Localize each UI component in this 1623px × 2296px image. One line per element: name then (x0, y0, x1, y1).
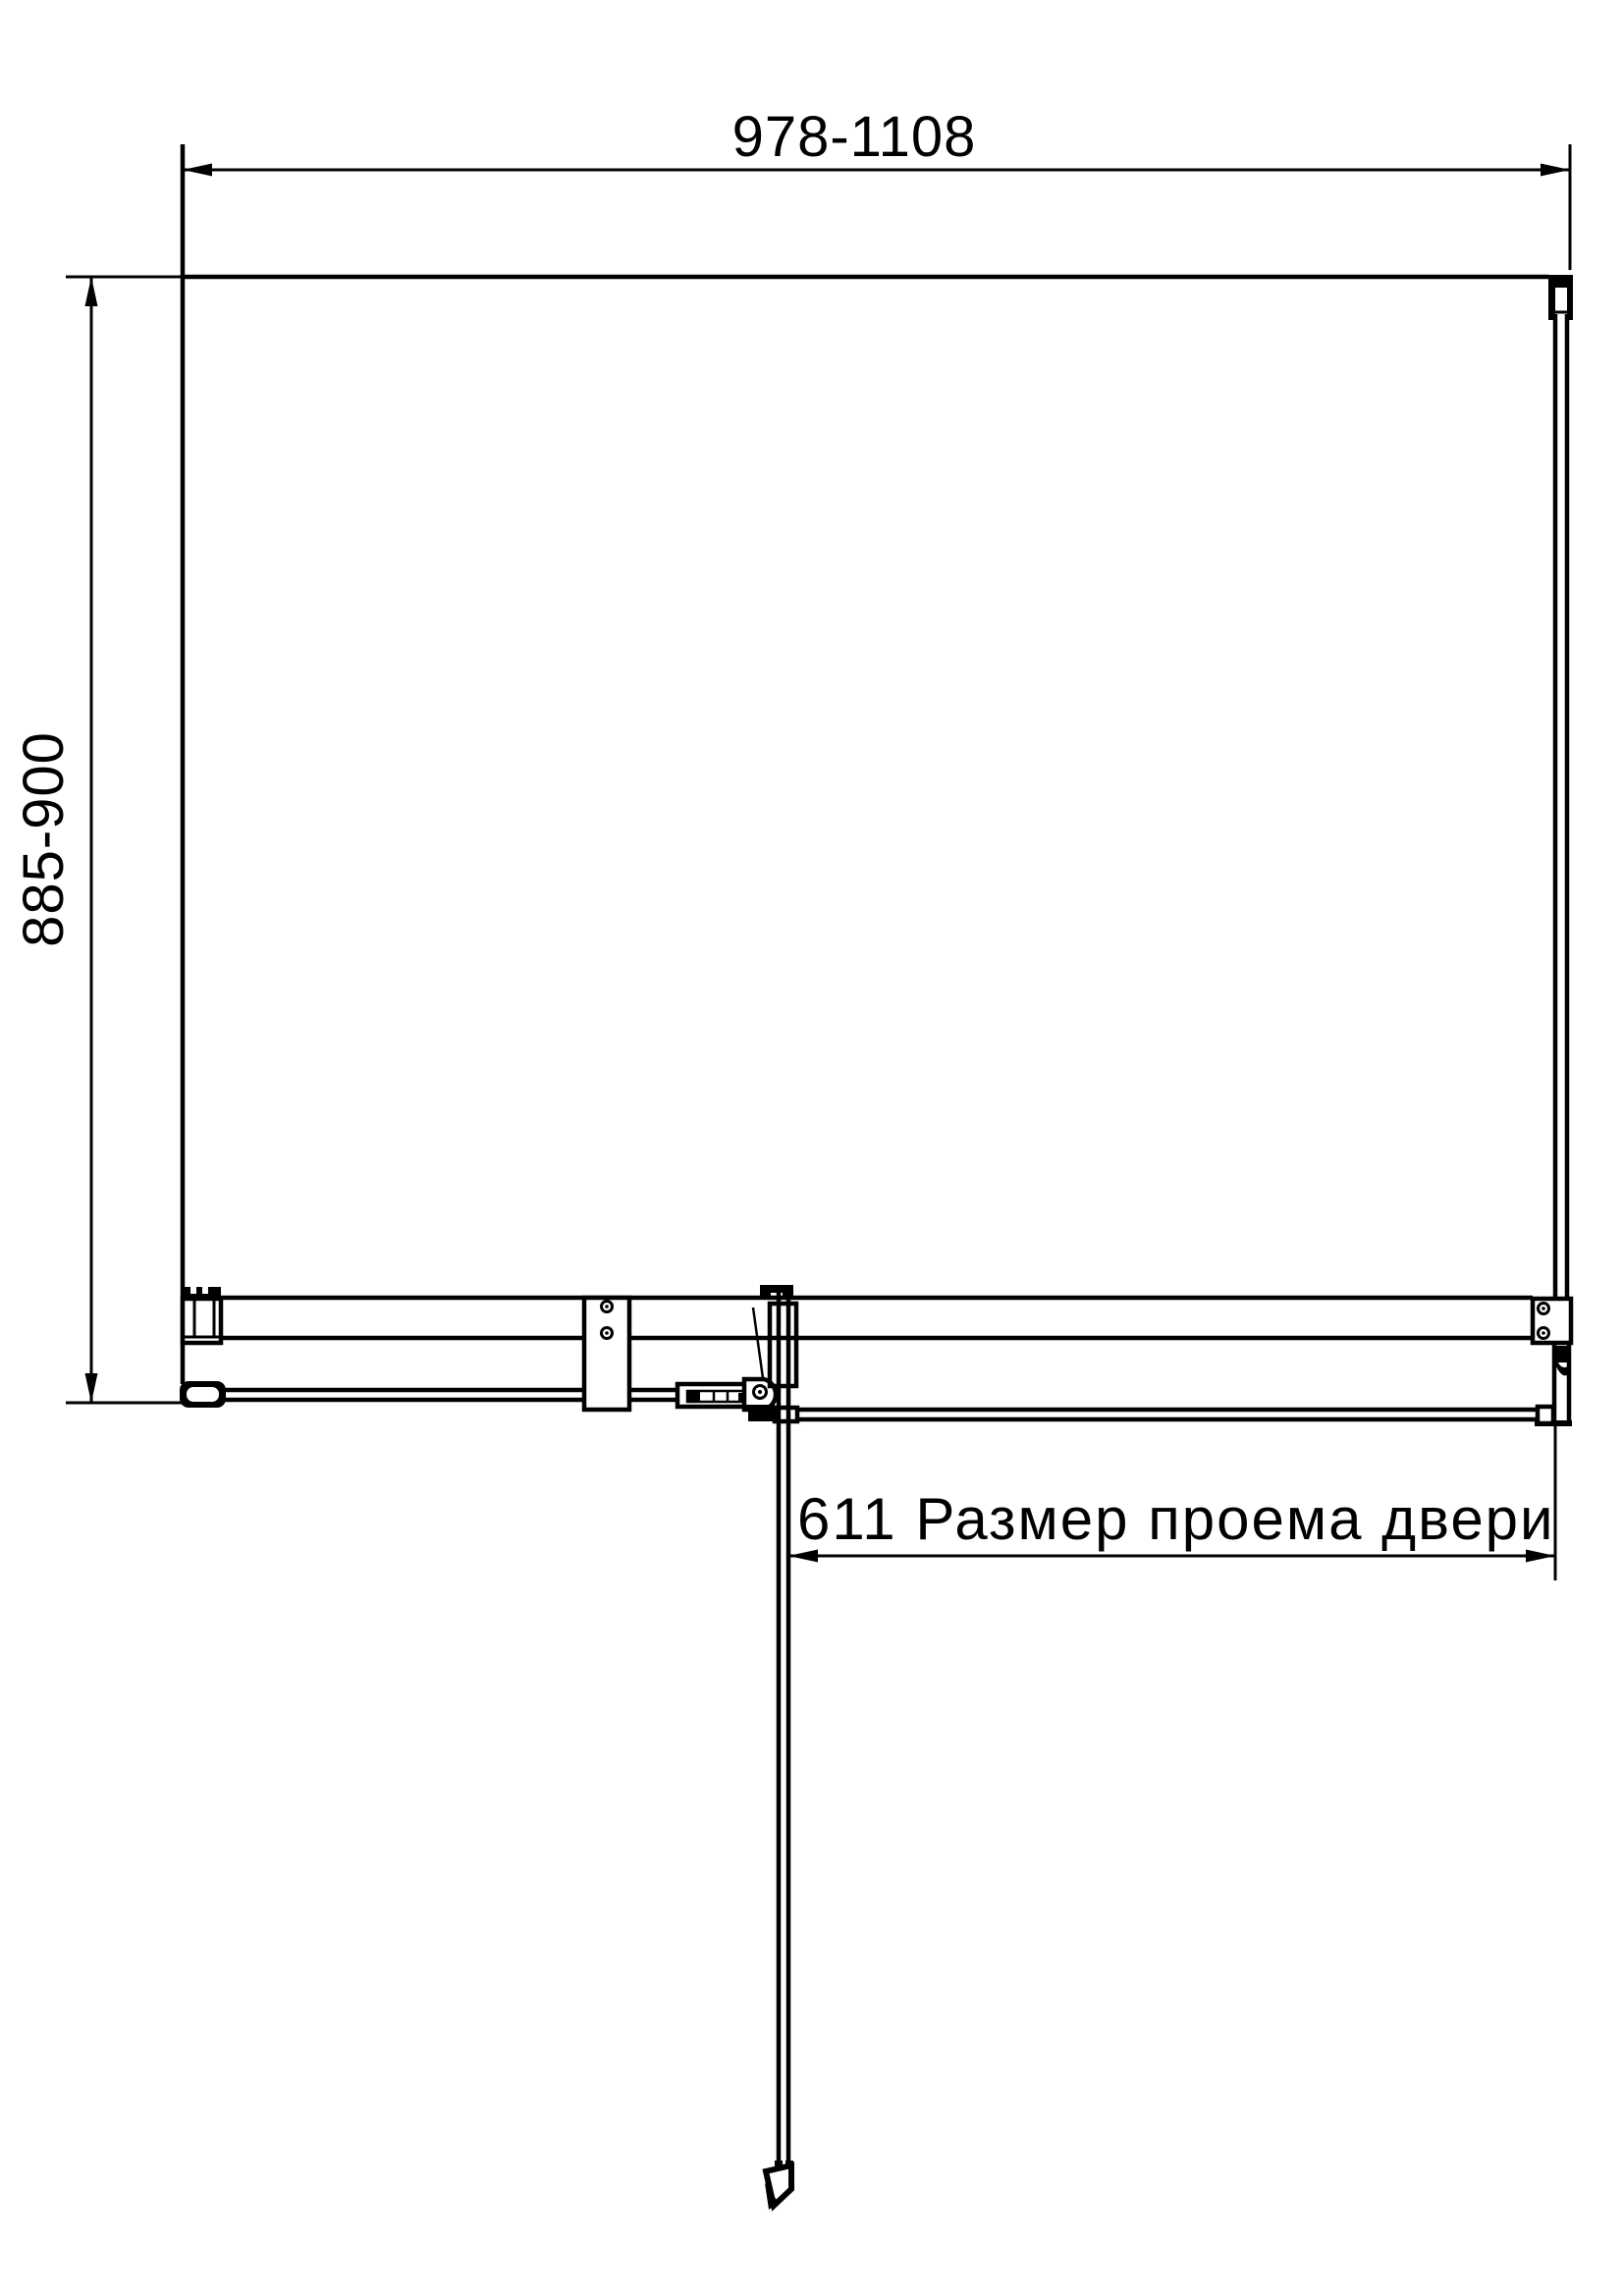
right-bracket-screw-dot (1542, 1331, 1545, 1335)
left-bracket-band-notch (202, 1287, 208, 1294)
door-guide-black (748, 1408, 775, 1421)
channel-roller (1556, 1346, 1567, 1362)
technical-drawing-canvas: 978-1108 885-900 611 Размер проема двери (0, 0, 1623, 2296)
left-bracket-band-notch (190, 1287, 196, 1294)
channel-end-block (1538, 1407, 1553, 1423)
arrowhead-right (1541, 164, 1570, 177)
right-guide-channel (1535, 1343, 1572, 1423)
door-carrier-profile (770, 1304, 796, 1386)
carriage-plate-body (584, 1298, 629, 1410)
door-hanger-bar (760, 1285, 793, 1293)
door-hanger-foot (760, 1292, 771, 1300)
carriage-screw-dot (605, 1305, 609, 1308)
right-glass-panel (1548, 275, 1573, 1301)
dimension-depth-label: 885-900 (12, 731, 76, 947)
dimension-door-label: 611 Размер проема двери (797, 1486, 1555, 1552)
arrowhead-bottom (85, 1373, 98, 1403)
drawing-sheet: 978-1108 885-900 611 Размер проема двери (0, 0, 1623, 2296)
latch-lever (753, 1308, 763, 1378)
bottom-rail (183, 1298, 1538, 1419)
left-end-cap (180, 1381, 226, 1408)
carriage-screw-dot (605, 1331, 609, 1335)
arrowhead-left (183, 164, 212, 177)
dimension-door-opening: 611 Размер проема двери (788, 1426, 1555, 1580)
enclosure-outline (183, 144, 1548, 1384)
damper-block (687, 1391, 700, 1402)
dimension-depth: 885-900 (12, 277, 185, 1403)
door-assembly (748, 1285, 797, 2210)
carriage-plate (584, 1298, 629, 1410)
right-wall-bracket (1533, 1299, 1571, 1343)
dimension-width-label: 978-1108 (732, 105, 977, 169)
damper-assembly (677, 1308, 776, 1410)
left-wall-bracket (183, 1287, 221, 1343)
dimension-width: 978-1108 (183, 105, 1570, 270)
pivot-pin-dot (758, 1390, 762, 1394)
arrowhead-top (85, 277, 98, 306)
end-cap-inner (187, 1387, 219, 1402)
right-bracket-screw-dot (1542, 1307, 1545, 1310)
